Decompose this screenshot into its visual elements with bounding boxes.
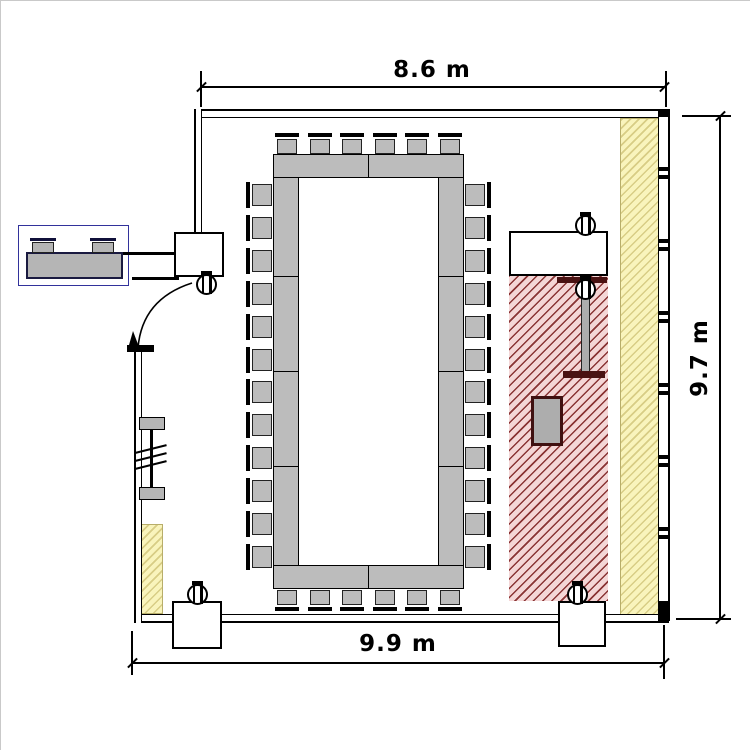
- chairs-top-row: [275, 133, 462, 154]
- window-band-right: [658, 109, 670, 621]
- table-joint: [439, 371, 463, 372]
- table-joint: [439, 276, 463, 277]
- chair: [465, 544, 491, 570]
- chair: [246, 445, 272, 471]
- dimension-extension-bottom-right: [663, 625, 665, 679]
- dimension-label-top: 8.6 m: [332, 57, 532, 83]
- chair: [438, 133, 462, 154]
- chair: [465, 478, 491, 504]
- chair: [246, 281, 272, 307]
- chairs-left-column: [246, 182, 272, 570]
- chair: [246, 511, 272, 537]
- chair: [465, 445, 491, 471]
- reception-chair: [90, 238, 116, 253]
- chair: [246, 478, 272, 504]
- device-cap: [572, 581, 583, 585]
- dimension-extension-right-bottom: [676, 618, 731, 620]
- chair: [246, 379, 272, 405]
- chair: [246, 248, 272, 274]
- projection-screen: [509, 231, 608, 276]
- chair: [246, 412, 272, 438]
- chair: [465, 347, 491, 373]
- window-mullion: [659, 239, 668, 251]
- dimension-label-right: 9.7 m: [687, 318, 713, 398]
- chairs-bottom-row: [275, 590, 462, 611]
- chair: [308, 590, 332, 611]
- chair: [246, 314, 272, 340]
- dimension-extension-bottom-left: [131, 631, 133, 675]
- table-joint: [439, 466, 463, 467]
- corridor-wall-upper: [123, 252, 179, 255]
- chair: [465, 215, 491, 241]
- dimension-label-bottom: 9.9 m: [298, 631, 498, 657]
- radiator-bar-bottom: [139, 487, 165, 500]
- window-mullion: [659, 455, 668, 467]
- reception-chairs: [30, 238, 116, 254]
- reception-chair: [30, 238, 56, 253]
- chair: [465, 314, 491, 340]
- table-joint: [274, 371, 298, 372]
- column-bottom-left: [172, 601, 222, 649]
- chair: [405, 133, 429, 154]
- chair: [308, 133, 332, 154]
- dimension-extension-top-right: [665, 71, 667, 107]
- chair: [405, 590, 429, 611]
- dimension-line-top: [201, 86, 664, 88]
- column-bottom-right: [558, 601, 606, 647]
- wall-left-upper: [194, 109, 202, 234]
- window-mullion: [659, 311, 668, 323]
- chair: [275, 590, 299, 611]
- table-joint: [368, 566, 369, 588]
- chair: [246, 182, 272, 208]
- chair: [246, 544, 272, 570]
- wall-left-lower: [134, 348, 142, 623]
- ceiling-device-icon: [196, 274, 217, 295]
- window-strip-yellow-right: [620, 118, 659, 615]
- ceiling-device-icon: [575, 279, 596, 300]
- chair: [465, 511, 491, 537]
- corridor-wall-lower: [132, 277, 179, 280]
- dimension-extension-right-top: [682, 115, 731, 117]
- chair: [246, 215, 272, 241]
- chair: [246, 347, 272, 373]
- reception-desk: [26, 252, 123, 279]
- device-cap: [201, 271, 212, 275]
- radiator-pipe: [150, 430, 153, 487]
- wall-top: [194, 109, 669, 118]
- entrance-column: [174, 232, 224, 277]
- chair: [373, 133, 397, 154]
- device-cap: [580, 276, 591, 280]
- chair: [438, 590, 462, 611]
- device-cap: [580, 212, 591, 216]
- chair: [465, 379, 491, 405]
- table-joint: [274, 466, 298, 467]
- chair: [340, 133, 364, 154]
- chair: [465, 412, 491, 438]
- floor-plan-canvas: 8.6 m 9.7 m 9.9 m: [0, 0, 750, 750]
- ceiling-device-icon: [187, 584, 208, 605]
- device-cap: [192, 581, 203, 585]
- projector-box: [531, 396, 563, 446]
- table-joint: [274, 276, 298, 277]
- dimension-line-bottom: [132, 662, 664, 664]
- chair: [465, 182, 491, 208]
- window-mullion: [659, 383, 668, 395]
- window-mullion: [659, 167, 668, 179]
- ceiling-device-icon: [567, 584, 588, 605]
- chair: [465, 248, 491, 274]
- table-joint: [368, 155, 369, 177]
- dimension-line-right: [719, 116, 721, 619]
- flipchart-stand-base: [563, 371, 605, 378]
- radiator-bar-top: [139, 417, 165, 430]
- chairs-right-column: [465, 182, 491, 570]
- chair: [275, 133, 299, 154]
- chair: [340, 590, 364, 611]
- chair: [373, 590, 397, 611]
- window-mullion: [659, 527, 668, 539]
- ceiling-device-icon: [575, 215, 596, 236]
- chair: [465, 281, 491, 307]
